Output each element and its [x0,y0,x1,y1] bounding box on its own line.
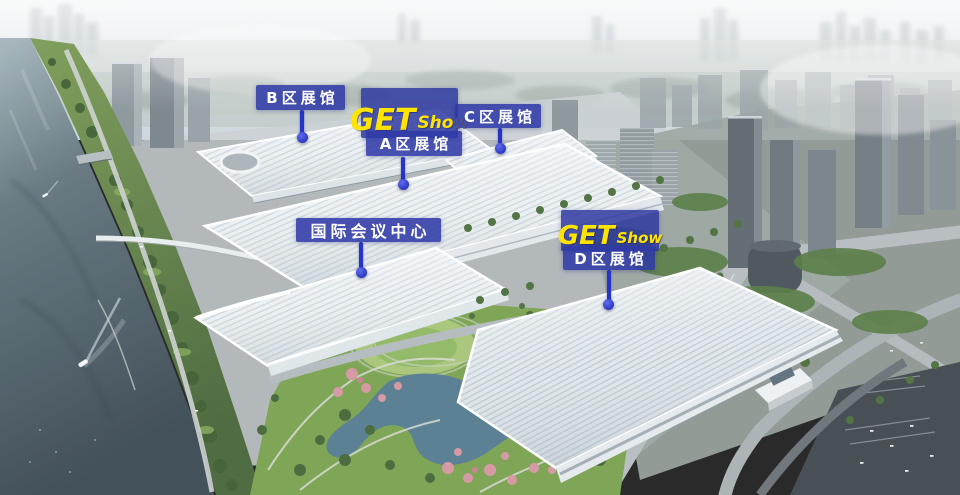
hall-d-label: D区展馆 [570,248,647,269]
aerial-rendering-image: B区展馆 GET Show A区展馆 C区展馆 国际会议中心 GET Show … [0,0,960,495]
pointer-line-hall-d [607,270,611,302]
pointer-dot-conference [356,267,367,278]
pointer-line-conference [359,242,363,269]
logo-get-text-2: GET [558,225,615,247]
conference-center-label: 国际会议中心 [306,218,430,242]
pointer-line-hall-c [498,128,502,144]
pointer-dot-hall-c [495,143,506,154]
logo-getshow-bottom: GET Show [561,210,659,251]
annotation-conference-center: 国际会议中心 [296,218,441,242]
pointer-dot-hall-b [297,132,308,143]
hall-b-label: B区展馆 [262,87,338,108]
pointer-dot-hall-d [603,299,614,310]
annotation-hall-c: C区展馆 [455,104,541,128]
pointer-dot-hall-a [398,179,409,190]
logo-show-text-2: Show [617,231,663,246]
annotation-hall-d: D区展馆 [563,246,655,270]
annotation-hall-a: A区展馆 [366,131,462,156]
scene-painting [0,0,960,495]
overall-haze [0,0,960,495]
logo-get-text: GET [350,108,416,134]
hall-a-label: A区展馆 [376,133,453,154]
hall-c-label: C区展馆 [460,106,536,127]
annotation-hall-b: B区展馆 [256,85,345,110]
